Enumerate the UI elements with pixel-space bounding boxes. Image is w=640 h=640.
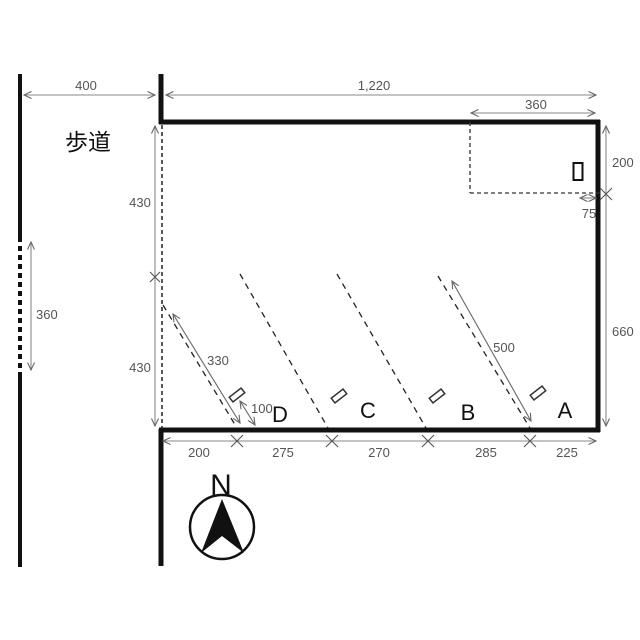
dim-label-stall-d-length: 330 (207, 353, 229, 368)
meas-line-stall-d (173, 314, 240, 423)
dim-label-segment-5: 225 (556, 445, 578, 460)
stall-label-c: C (360, 398, 376, 423)
dim-label-street-opening: 360 (36, 307, 58, 322)
north-label: N (210, 469, 232, 502)
dim-label-right-depth: 660 (612, 324, 634, 339)
stall-divider-4 (438, 276, 530, 428)
dim-label-stall-a-length: 500 (493, 340, 515, 355)
dim-label-left-depth-lower: 430 (129, 360, 151, 375)
dim-label-segment-2: 275 (272, 445, 294, 460)
site-plan-drawing: N 歩道 400 1,220 360 200 75 430 430 360 66… (0, 0, 640, 640)
dim-label-notch-depth: 200 (612, 155, 634, 170)
pole-marker (574, 163, 583, 180)
dim-label-left-depth-upper: 430 (129, 195, 151, 210)
sidewalk-label: 歩道 (65, 130, 111, 156)
dim-label-frontage: 1,220 (358, 78, 391, 93)
wheel-stop-a (530, 386, 546, 400)
dim-label-segment-4: 285 (475, 445, 497, 460)
compass-needle (201, 499, 244, 553)
dim-label-notch-offset: 75 (582, 206, 596, 221)
dim-label-segment-3: 270 (368, 445, 390, 460)
dim-label-stop-setback: 100 (251, 401, 273, 416)
dim-label-segment-1: 200 (188, 445, 210, 460)
wheel-stop-d (229, 388, 245, 402)
site-plan-canvas: N 歩道 400 1,220 360 200 75 430 430 360 66… (0, 0, 640, 640)
stall-divider-3 (337, 274, 426, 428)
wheel-stop-b (429, 389, 445, 403)
stall-label-a: A (558, 398, 573, 423)
dim-label-sidewalk-width: 400 (75, 78, 97, 93)
stall-label-b: B (461, 400, 476, 425)
dim-label-notch-width: 360 (525, 97, 547, 112)
stall-label-d: D (272, 402, 288, 427)
wheel-stop-c (331, 389, 347, 403)
